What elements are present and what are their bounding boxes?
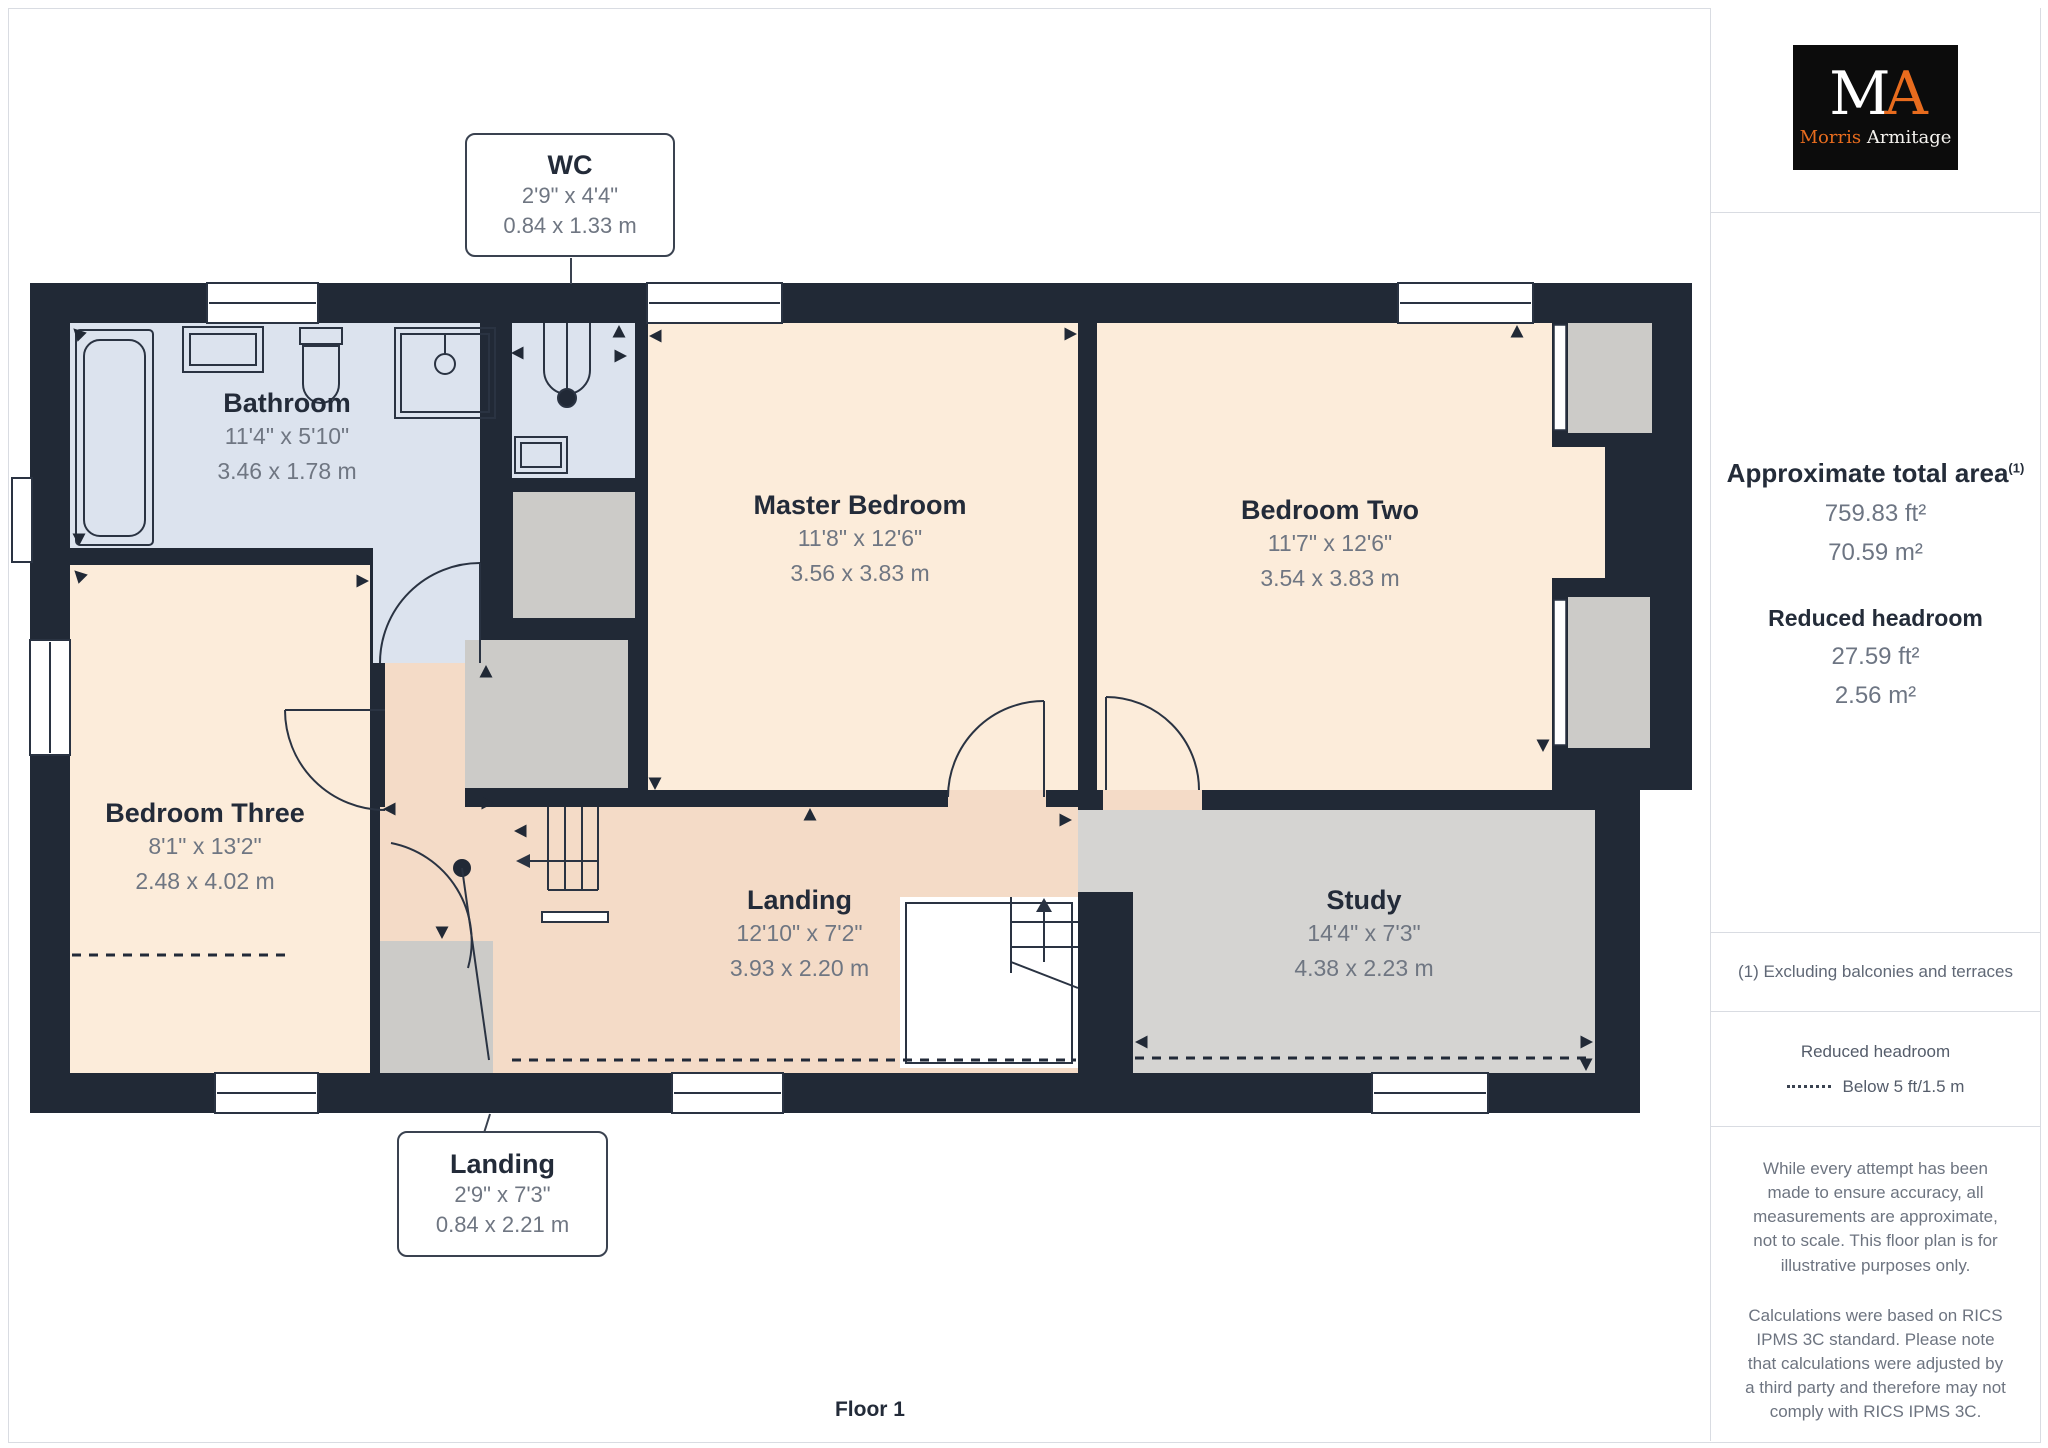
callout-dim-imperial: 2'9" x 7'3" — [454, 1180, 550, 1210]
logo-word-armitage: Armitage — [1867, 127, 1952, 148]
total-area-footnote-marker: (1) — [2008, 460, 2024, 475]
legend-value: Below 5 ft/1.5 m — [1843, 1077, 1965, 1097]
morris-armitage-logo: MA Morris Armitage — [1793, 45, 1958, 170]
logo-word-morris: Morris — [1800, 127, 1861, 148]
logo-section: MA Morris Armitage — [1711, 8, 2040, 213]
disclaimer-paragraph-2: Calculations were based on RICS IPMS 3C … — [1745, 1304, 2006, 1425]
total-area-m: 70.59 m² — [1711, 539, 2040, 567]
footnote-section: (1) Excluding balconies and terraces — [1711, 933, 2040, 1012]
legend-title: Reduced headroom — [1801, 1042, 1950, 1062]
legend-row: Below 5 ft/1.5 m — [1787, 1077, 1965, 1097]
logo-monogram: MA — [1829, 67, 1922, 121]
logo-letter-m: M — [1829, 59, 1884, 129]
total-area-ft: 759.83 ft² — [1711, 500, 2040, 528]
legend-section: Reduced headroom Below 5 ft/1.5 m — [1711, 1012, 2040, 1127]
logo-letter-a: A — [1885, 59, 1922, 129]
floor-label: Floor 1 — [760, 1398, 980, 1422]
logo-wordmark: Morris Armitage — [1800, 127, 1952, 148]
callout-dim-metric: 0.84 x 2.21 m — [436, 1210, 569, 1240]
callout-landing-small: Landing 2'9" x 7'3" 0.84 x 2.21 m — [397, 1131, 608, 1257]
callout-wc: WC 2'9" x 4'4" 0.84 x 1.33 m — [465, 133, 675, 257]
disclaimer-paragraph-1: While every attempt has been made to ens… — [1745, 1157, 2006, 1278]
total-area-title: Approximate total area(1) — [1711, 458, 2040, 489]
reduced-headroom-ft: 27.59 ft² — [1711, 643, 2040, 671]
callout-dim-metric: 0.84 x 1.33 m — [503, 211, 636, 241]
floorplan-page: Bathroom 11'4" x 5'10" 3.46 x 1.78 m Mas… — [0, 0, 2048, 1448]
callout-dim-imperial: 2'9" x 4'4" — [522, 181, 618, 211]
disclaimer-section: While every attempt has been made to ens… — [1711, 1127, 2040, 1448]
reduced-headroom-m: 2.56 m² — [1711, 682, 2040, 710]
callout-name: Landing — [450, 1149, 555, 1180]
area-section: Approximate total area(1) 759.83 ft² 70.… — [1711, 213, 2040, 933]
callout-name: WC — [548, 150, 593, 181]
dashed-line-icon — [1787, 1085, 1831, 1088]
reduced-headroom-title: Reduced headroom — [1711, 605, 2040, 632]
info-sidebar: MA Morris Armitage Approximate total are… — [1710, 8, 2040, 1441]
footnote-text: (1) Excluding balconies and terraces — [1738, 962, 2013, 982]
